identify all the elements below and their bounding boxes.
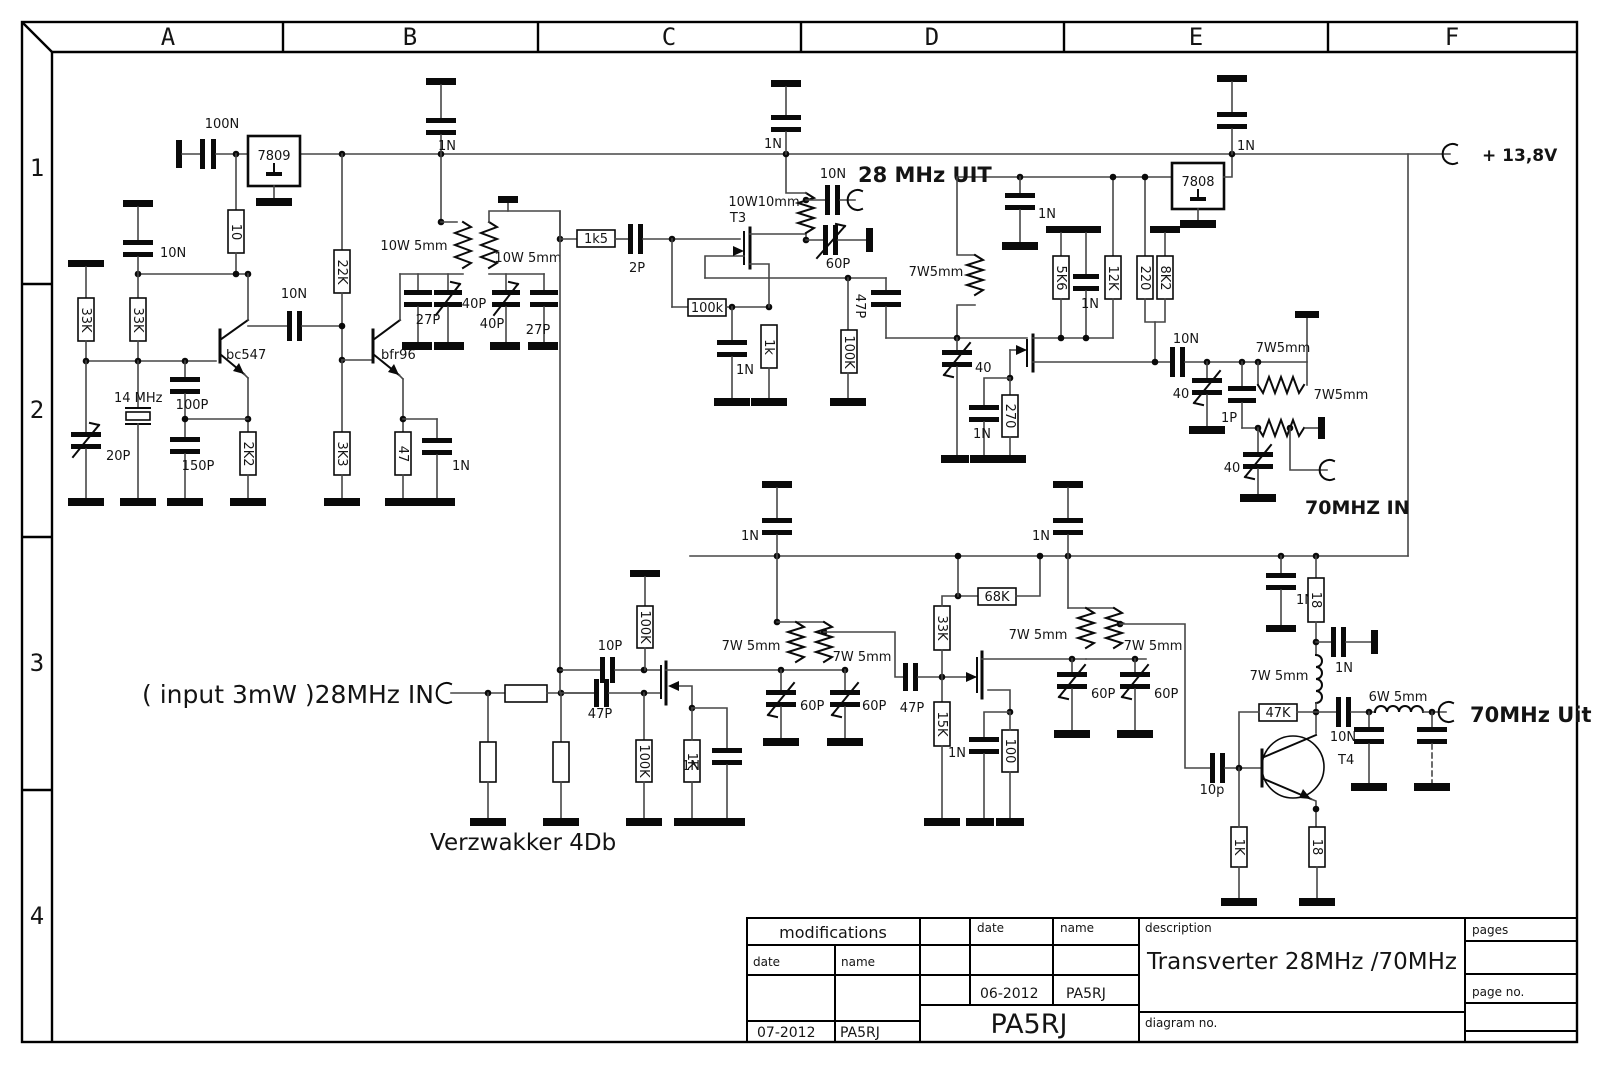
cap-60p-b3-label: 60P — [1091, 687, 1116, 702]
attenuator-caption: Verzwakker 4Db — [430, 830, 616, 856]
coil-6w5-label: 6W 5mm — [1369, 690, 1428, 705]
res-22k-label: 22K — [334, 259, 349, 285]
res-33k-a-label: 33K — [78, 307, 93, 333]
rev1-date: 06-2012 — [980, 986, 1039, 1002]
cap-1n-rx-label: 1N — [973, 427, 991, 442]
regulator-7809: 100N 7809 10 — [176, 117, 300, 274]
cap-47p-c-label: 47P — [852, 294, 867, 319]
cap-1n-top-c-label: 1N — [764, 137, 782, 152]
cap-60p-tx-label: 60P — [826, 257, 851, 272]
cap-10p-label: 10P — [598, 639, 623, 654]
output-transformer: 1N 10W 5mm 10W 5mm 27P 40P 40P — [380, 78, 561, 350]
cap-40p-a-label: 40P — [462, 297, 487, 312]
rev2-name: PA5RJ — [840, 1025, 880, 1041]
cap-47p-b2-label: 47P — [900, 701, 925, 716]
coil-7w5-e1-label: 7W5mm — [1256, 341, 1311, 356]
cap-40-e2-label: 40 — [1224, 461, 1241, 476]
modifications-header: modifications — [779, 923, 887, 942]
grid-row-3: 3 — [30, 649, 44, 677]
mod-date-label: date — [753, 955, 780, 969]
cap-40-rx-label: 40 — [975, 361, 992, 376]
grid-col-d: D — [925, 23, 939, 51]
coil-7w5-b2-label: 7W 5mm — [833, 650, 892, 665]
res-47-label: 47 — [395, 446, 410, 463]
coil-7w5-t4-label: 7W 5mm — [1250, 669, 1309, 684]
oscillator-stage: 10N 33K 33K bc547 10N 2K2 — [68, 200, 342, 506]
schematic-page: A B C D E F 1 2 3 4 modifications date n… — [0, 0, 1599, 1081]
cap-10n-a-label: 10N — [160, 246, 186, 261]
supply-rails: + 13,8V — [300, 144, 1558, 556]
cap-2p-label: 2P — [629, 261, 645, 276]
tx-amp1: 10P 100K 47P 100K 1K 1N — [560, 570, 845, 826]
cap-1n-r2-label: 1N — [1032, 529, 1050, 544]
res-100k-t3g-label: 100k — [691, 301, 724, 316]
reg-7808-label: 7808 — [1181, 175, 1214, 190]
cap-1n-top-b-label: 1N — [438, 139, 456, 154]
cap-60p-b2-label: 60P — [862, 699, 887, 714]
coil-10w5-2-label: 10W 5mm — [494, 251, 561, 266]
in-70mhz-label: 70MHZ IN — [1305, 497, 1410, 519]
cap-1n-mid-label: 1N — [1081, 297, 1099, 312]
coil-10w10-label: 10W10mm — [728, 195, 799, 210]
cap-1p-label: 1P — [1221, 411, 1237, 426]
coil-7w5-b4-label: 7W 5mm — [1124, 639, 1183, 654]
cap-60p-b4-label: 60P — [1154, 687, 1179, 702]
cap-1n-m2-label: 1N — [948, 746, 966, 761]
cap-40-e1-label: 40 — [1173, 387, 1190, 402]
cap-100n-label: 100N — [205, 117, 240, 132]
coil-10w5-1-label: 10W 5mm — [380, 239, 447, 254]
transverter-schematic: A B C D E F 1 2 3 4 modifications date n… — [0, 0, 1599, 1081]
output-stage-t4: 1N 18 1N 7W 5mm 47K 10p T4 — [1200, 553, 1592, 906]
res-18-b-label: 18 — [1309, 839, 1324, 856]
description: Transverter 28MHz /70MHz — [1146, 949, 1457, 975]
name-label: name — [1060, 921, 1094, 935]
coil-7w5-b3-label: 7W 5mm — [1009, 628, 1068, 643]
coil-7w5-b1-label: 7W 5mm — [722, 639, 781, 654]
grid-col-c: C — [662, 23, 676, 51]
cap-27p-b-label: 27P — [526, 323, 551, 338]
grid-row-4: 4 — [30, 902, 44, 930]
res-33k-m2-label: 33K — [934, 615, 949, 641]
cap-20p-label: 20P — [106, 449, 131, 464]
res-100k-b2-label: 100K — [636, 744, 651, 778]
in-28mhz-label: ( input 3mW )28MHz IN — [142, 680, 434, 709]
res-100k-c-label: 100K — [841, 335, 856, 369]
grid-col-b: B — [403, 23, 417, 51]
res-5k6-label: 5K6 — [1053, 265, 1068, 290]
res-270-label: 270 — [1002, 404, 1017, 429]
cap-10n-tx-label: 10N — [820, 167, 846, 182]
tx-mixer-t3: 1k5 2P T3 10W10mm 1N 10N 28 MHz UIT — [557, 80, 993, 406]
res-1k-t4-label: 1K — [1231, 839, 1246, 856]
res-220-label: 220 — [1137, 266, 1152, 291]
rev1-name: PA5RJ — [1066, 986, 1106, 1002]
cap-10p-t4-label: 10p — [1200, 783, 1225, 798]
cap-10n-b-label: 10N — [281, 287, 307, 302]
description-label: description — [1145, 921, 1212, 935]
cap-27p-a-label: 27P — [416, 313, 441, 328]
res-1k5-label: 1k5 — [584, 232, 608, 247]
page-no-label: page no. — [1472, 985, 1524, 999]
cap-1n-r1-label: 1N — [741, 529, 759, 544]
res-33k-b-label: 33K — [130, 307, 145, 333]
res-12k-label: 12K — [1105, 265, 1120, 291]
res-18-a-label: 18 — [1308, 592, 1323, 609]
res-15k-m2-label: 15K — [934, 711, 949, 737]
cap-1n-top-e-label: 1N — [1237, 139, 1255, 154]
res-1k-t3-label: 1k — [761, 339, 776, 355]
res-47k-label: 47K — [1265, 706, 1291, 721]
out-28mhz-label: 28 MHz UIT — [858, 163, 992, 187]
res-100k-b1-label: 100K — [637, 610, 652, 644]
cap-1n-lpf-label: 1N — [1335, 661, 1353, 676]
reg-7809-label: 7809 — [257, 149, 290, 164]
author: PA5RJ — [991, 1009, 1068, 1040]
rx-70mhz-filter: 10N 40 7W5mm 1P 7W5mm 70MHZ IN — [1170, 311, 1410, 519]
coil-7w5-d-label: 7W5mm — [909, 265, 964, 280]
cap-60p-b1-label: 60P — [800, 699, 825, 714]
cap-1n-t3-label: 1N — [736, 363, 754, 378]
res-100-m2-label: 100 — [1002, 739, 1017, 764]
tx-amp2: 47P 33K 15K 68K 1N 100 — [900, 553, 1086, 826]
cap-100p-label: 100P — [176, 398, 209, 413]
coil-7w5-e2-label: 7W5mm — [1314, 388, 1369, 403]
cap-40p-b-label: 40P — [480, 317, 505, 332]
title-block: modifications date name 07-2012 PA5RJ da… — [747, 918, 1577, 1042]
input-attenuator: ( input 3mW )28MHz IN Verzwakker 4Db — [142, 211, 616, 856]
date-label: date — [977, 921, 1004, 935]
grid-col-a: A — [161, 23, 176, 51]
mod-name-label: name — [841, 955, 875, 969]
t3-label: T3 — [729, 211, 746, 226]
cap-10n-e-label: 10N — [1173, 332, 1199, 347]
diagram-no-label: diagram no. — [1145, 1016, 1217, 1030]
res-10-label: 10 — [228, 224, 243, 241]
grid-col-f: F — [1445, 23, 1459, 51]
out-70mhz-label: 70MHz Uit — [1470, 703, 1592, 727]
pages-label: pages — [1472, 923, 1508, 937]
cap-150p-label: 150P — [182, 459, 215, 474]
grid-col-e: E — [1189, 23, 1203, 51]
q2-bfr96-label: bfr96 — [381, 348, 416, 363]
t4-label: T4 — [1337, 753, 1354, 768]
cap-1n-b1-label: 1N — [682, 759, 700, 774]
cap-10n-t4-label: 10N — [1330, 730, 1356, 745]
cap-1n-d-label: 1N — [1038, 207, 1056, 222]
rev2-date: 07-2012 — [757, 1025, 816, 1041]
res-2k2-label: 2K2 — [240, 441, 255, 466]
res-3k3-label: 3K3 — [334, 441, 349, 466]
grid-row-2: 2 — [30, 396, 44, 424]
cap-47p-b1-label: 47P — [588, 707, 613, 722]
bandpass-filter-1: 7W 5mm 7W 5mm 60P 60P — [722, 553, 903, 746]
bandpass-filter-2: 1N 1N 7W 5mm 7W 5mm 60P 60P — [741, 481, 1210, 768]
res-8k2-label: 8K2 — [1157, 265, 1172, 290]
grid-row-1: 1 — [30, 154, 44, 182]
supply-13v8-label: + 13,8V — [1482, 146, 1558, 166]
res-68k-label: 68K — [984, 590, 1010, 605]
q1-bc547-label: bc547 — [226, 348, 266, 363]
xtal-14mhz-label: 14 MHz — [114, 391, 163, 406]
cap-1n-q2-label: 1N — [452, 459, 470, 474]
